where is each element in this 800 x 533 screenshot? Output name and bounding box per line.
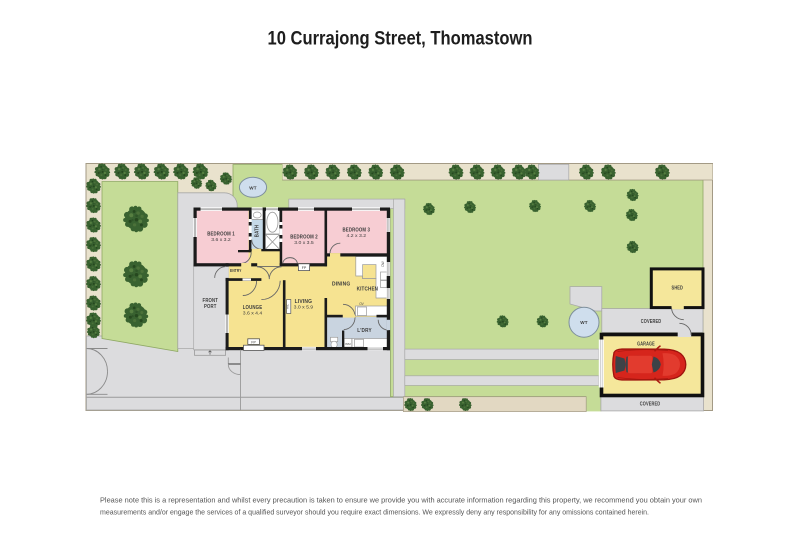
svg-text:WM: WM (345, 342, 351, 346)
svg-text:KITCHEN: KITCHEN (357, 287, 379, 293)
svg-text:DINING: DINING (332, 282, 350, 288)
svg-text:3.0 x 3.5: 3.0 x 3.5 (294, 240, 314, 245)
svg-text:WT: WT (249, 185, 257, 191)
svg-text:10 Currajong Street, Thomastow: 10 Currajong Street, Thomastown (268, 29, 533, 50)
svg-text:L'DRY: L'DRY (357, 328, 372, 334)
svg-text:WT: WT (580, 320, 588, 326)
svg-text:DW: DW (381, 261, 385, 266)
svg-text:A/C: A/C (286, 303, 290, 309)
svg-text:SHED: SHED (672, 286, 684, 292)
svg-text:Please note this is a represen: Please note this is a representation and… (100, 496, 702, 505)
svg-text:ENTRY: ENTRY (230, 268, 242, 273)
svg-text:3.6 x 4.4: 3.6 x 4.4 (243, 310, 263, 315)
svg-text:COVERED: COVERED (641, 319, 662, 325)
svg-text:BATH: BATH (254, 225, 260, 238)
svg-text:FP: FP (302, 266, 307, 270)
svg-text:FP: FP (251, 340, 256, 344)
svg-text:3.0 x 5.9: 3.0 x 5.9 (294, 305, 314, 310)
svg-text:FRONT: FRONT (203, 298, 219, 304)
svg-text:GARAGE: GARAGE (637, 341, 655, 347)
svg-text:3.6 x 3.2: 3.6 x 3.2 (211, 237, 231, 242)
svg-text:COVERED: COVERED (640, 402, 661, 408)
svg-text:measurements and/or engage the: measurements and/or engage the services … (100, 508, 649, 517)
svg-text:PORT: PORT (204, 304, 217, 310)
svg-text:4.2 x 3.2: 4.2 x 3.2 (347, 233, 367, 238)
